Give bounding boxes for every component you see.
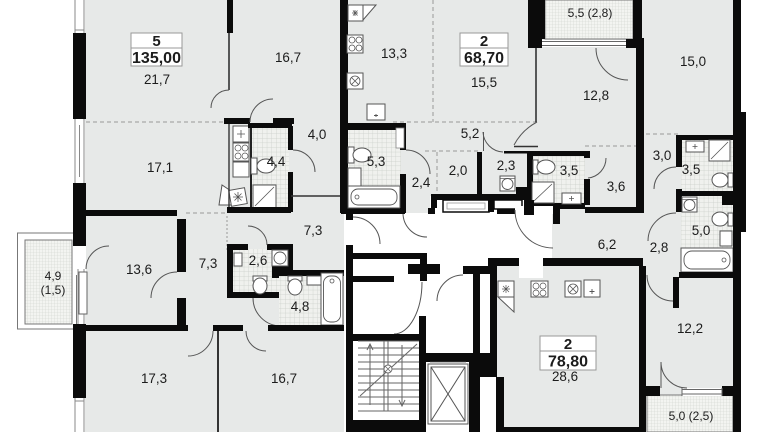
svg-text:6,2: 6,2 <box>598 237 617 252</box>
svg-text:12,8: 12,8 <box>583 88 609 103</box>
svg-text:13,3: 13,3 <box>381 46 407 61</box>
svg-text:5,0: 5,0 <box>692 223 711 238</box>
svg-text:15,0: 15,0 <box>680 54 706 69</box>
svg-text:5: 5 <box>152 33 160 50</box>
svg-text:7,3: 7,3 <box>199 256 218 271</box>
svg-text:78,80: 78,80 <box>548 354 588 371</box>
svg-text:17,1: 17,1 <box>147 160 173 175</box>
svg-text:21,7: 21,7 <box>144 72 170 87</box>
svg-text:3,5: 3,5 <box>682 162 701 177</box>
svg-text:2,0: 2,0 <box>449 163 468 178</box>
svg-text:2,3: 2,3 <box>497 158 516 173</box>
svg-text:5,2: 5,2 <box>461 126 480 141</box>
svg-text:3,0: 3,0 <box>653 148 672 163</box>
svg-text:(1,5): (1,5) <box>41 283 66 297</box>
svg-text:13,6: 13,6 <box>126 262 152 277</box>
svg-text:3,5: 3,5 <box>560 163 579 178</box>
svg-text:5,3: 5,3 <box>367 154 386 169</box>
svg-text:4,4: 4,4 <box>267 154 286 169</box>
svg-text:4,9: 4,9 <box>45 269 62 283</box>
svg-text:2,6: 2,6 <box>249 253 268 268</box>
svg-text:15,5: 15,5 <box>471 75 497 90</box>
svg-text:16,7: 16,7 <box>275 50 301 65</box>
svg-text:5,0 (2,5): 5,0 (2,5) <box>669 409 714 423</box>
svg-text:2,8: 2,8 <box>650 240 669 255</box>
svg-text:5,5 (2,8): 5,5 (2,8) <box>568 6 613 20</box>
svg-text:4,0: 4,0 <box>308 127 327 142</box>
svg-text:12,2: 12,2 <box>677 321 703 336</box>
svg-text:2,4: 2,4 <box>412 175 431 190</box>
svg-text:28,6: 28,6 <box>552 369 578 384</box>
svg-text:2: 2 <box>480 33 488 50</box>
svg-text:135,00: 135,00 <box>132 50 181 67</box>
svg-text:2: 2 <box>564 336 572 353</box>
svg-text:17,3: 17,3 <box>141 371 167 386</box>
svg-text:7,3: 7,3 <box>304 223 323 238</box>
svg-text:68,70: 68,70 <box>464 50 504 67</box>
svg-text:4,8: 4,8 <box>291 299 310 314</box>
svg-text:16,7: 16,7 <box>271 371 297 386</box>
svg-text:3,6: 3,6 <box>607 179 626 194</box>
